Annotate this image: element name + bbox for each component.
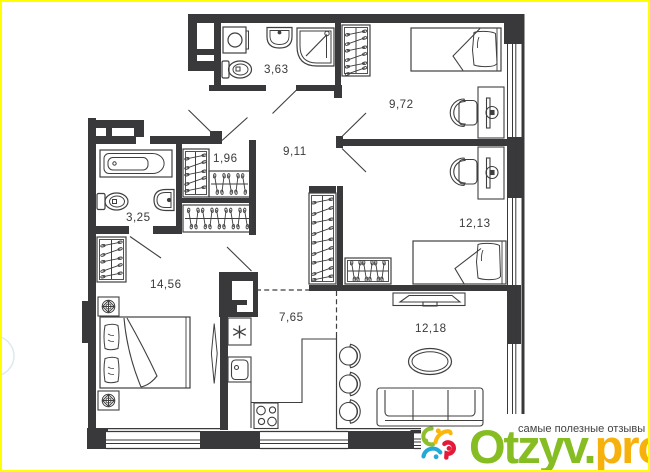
- svg-text:3,63: 3,63: [264, 63, 289, 76]
- svg-text:14,56: 14,56: [150, 278, 182, 291]
- svg-text:Otzyv.pro: Otzyv.pro: [469, 420, 650, 472]
- svg-text:12,18: 12,18: [415, 322, 447, 335]
- svg-text:12,13: 12,13: [459, 217, 491, 230]
- svg-text:3,25: 3,25: [126, 211, 151, 224]
- svg-text:7,65: 7,65: [279, 311, 304, 324]
- svg-text:1,96: 1,96: [213, 152, 238, 165]
- svg-text:9,11: 9,11: [283, 145, 307, 158]
- svg-text:9,72: 9,72: [389, 98, 414, 111]
